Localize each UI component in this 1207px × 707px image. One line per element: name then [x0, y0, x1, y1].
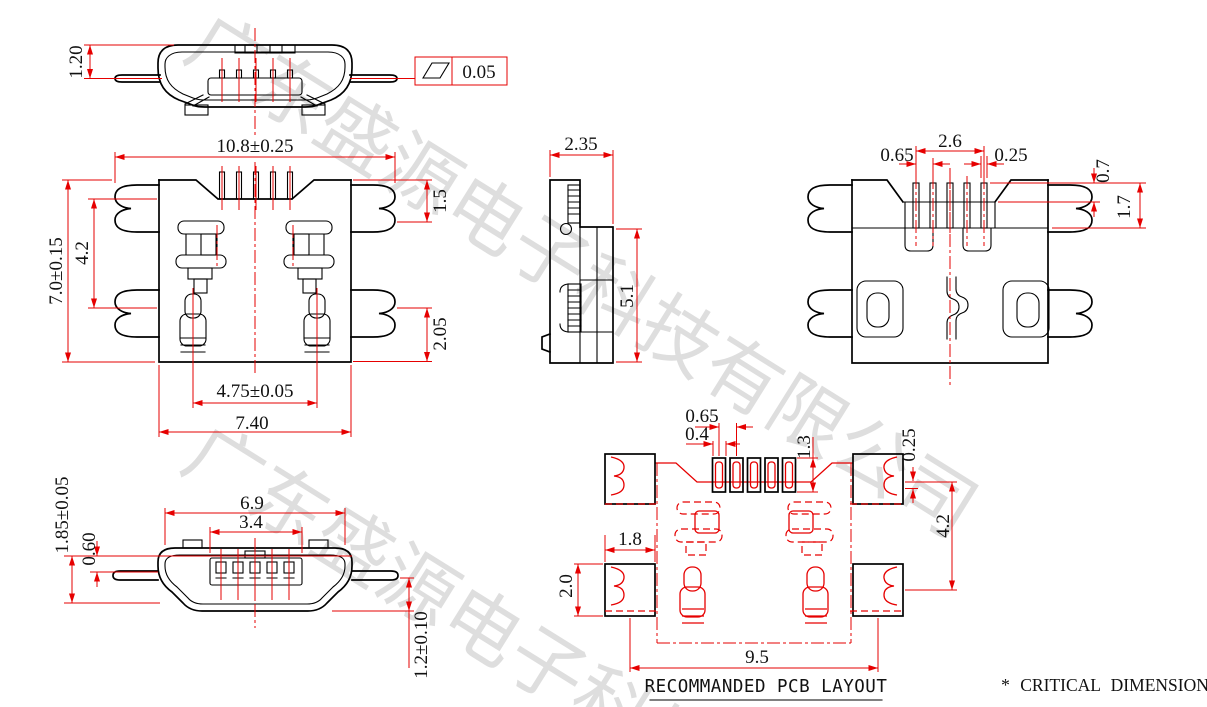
dim-pcb-anchor-span: 9.5 — [745, 647, 769, 668]
dim-bottom-lead-offset: 0.60 — [79, 532, 100, 565]
pcb-layout: 0.65 0.4 1.3 0.25 4.2 1.8 — [556, 406, 957, 700]
dim-side-depth: 2.35 — [564, 134, 597, 155]
flatness-callout: 0.05 — [415, 57, 507, 85]
anchor-pad — [605, 564, 655, 616]
dim-rear-pin-depth: 1.7 — [1114, 195, 1135, 219]
front-view: 1.20 — [66, 28, 415, 135]
dim-side-height: 5.1 — [617, 284, 638, 308]
rear-view: 2.6 0.65 0.25 0.7 1.7 — [808, 131, 1146, 385]
signal-pad — [765, 458, 778, 492]
flatness-value: 0.05 — [462, 62, 495, 83]
dim-front-height: 1.20 — [66, 45, 87, 78]
dim-bottom-shell-height: 1.85±0.05 — [52, 477, 73, 554]
dim-bottom-shell-width: 6.9 — [240, 493, 264, 514]
dim-pcb-pad-width: 0.4 — [685, 424, 709, 445]
pcb-layout-title: RECOMMANDED PCB LAYOUT — [645, 677, 888, 697]
dim-pcb-anchor-width: 1.8 — [618, 529, 642, 550]
dim-bottom-lead-height: 1.2±0.10 — [411, 611, 432, 678]
dim-pcb-pad-length: 1.3 — [794, 435, 815, 459]
dim-top-overall-depth: 7.0±0.15 — [46, 237, 67, 304]
dim-rear-pin-span: 2.6 — [938, 131, 962, 152]
signal-pad — [783, 458, 796, 492]
dim-pcb-row-offset: 4.2 — [933, 514, 954, 538]
critical-dimension-note: * CRITICAL DIMENSION — [1001, 675, 1207, 695]
bottom-view: 6.9 3.4 1.85±0.05 0.60 1.2±0.10 — [52, 477, 432, 679]
dim-rear-pin-step: 0.7 — [1093, 159, 1114, 183]
anchor-pad — [605, 454, 655, 504]
signal-pad — [713, 458, 726, 492]
dim-top-body-width: 7.40 — [235, 413, 268, 434]
anchor-pad — [853, 564, 903, 616]
dim-top-overall-width: 10.8±0.25 — [217, 136, 294, 157]
top-view: 10.8±0.25 1.5 4.2 7.0±0.15 2.05 4.75±0.0… — [46, 136, 451, 437]
anchor-pad — [853, 454, 903, 504]
dim-bottom-tongue-width: 3.4 — [239, 512, 263, 533]
dim-pcb-anchor-height: 2.0 — [556, 574, 577, 598]
flatness-symbol-icon — [423, 63, 449, 78]
engineering-drawing-canvas: 1.20 0.05 — [0, 0, 1207, 707]
signal-pad — [748, 458, 761, 492]
dim-rear-pin-width: 0.25 — [994, 145, 1027, 166]
side-view: 2.35 5.1 — [542, 134, 642, 363]
drawing-sheet: 广东盛源电子科技有限公司 广东盛源电子科技有限公司 — [0, 0, 1207, 707]
signal-pad — [730, 458, 743, 492]
dim-top-leg-offset: 2.05 — [430, 317, 451, 350]
dim-top-mount-span: 4.2 — [72, 241, 93, 265]
dim-top-leg-span: 4.75±0.05 — [217, 381, 294, 402]
dim-pcb-pad-offset: 0.25 — [899, 428, 920, 461]
dim-rear-pin-pitch: 0.65 — [880, 145, 913, 166]
dim-top-shield-tab: 1.5 — [430, 189, 451, 213]
